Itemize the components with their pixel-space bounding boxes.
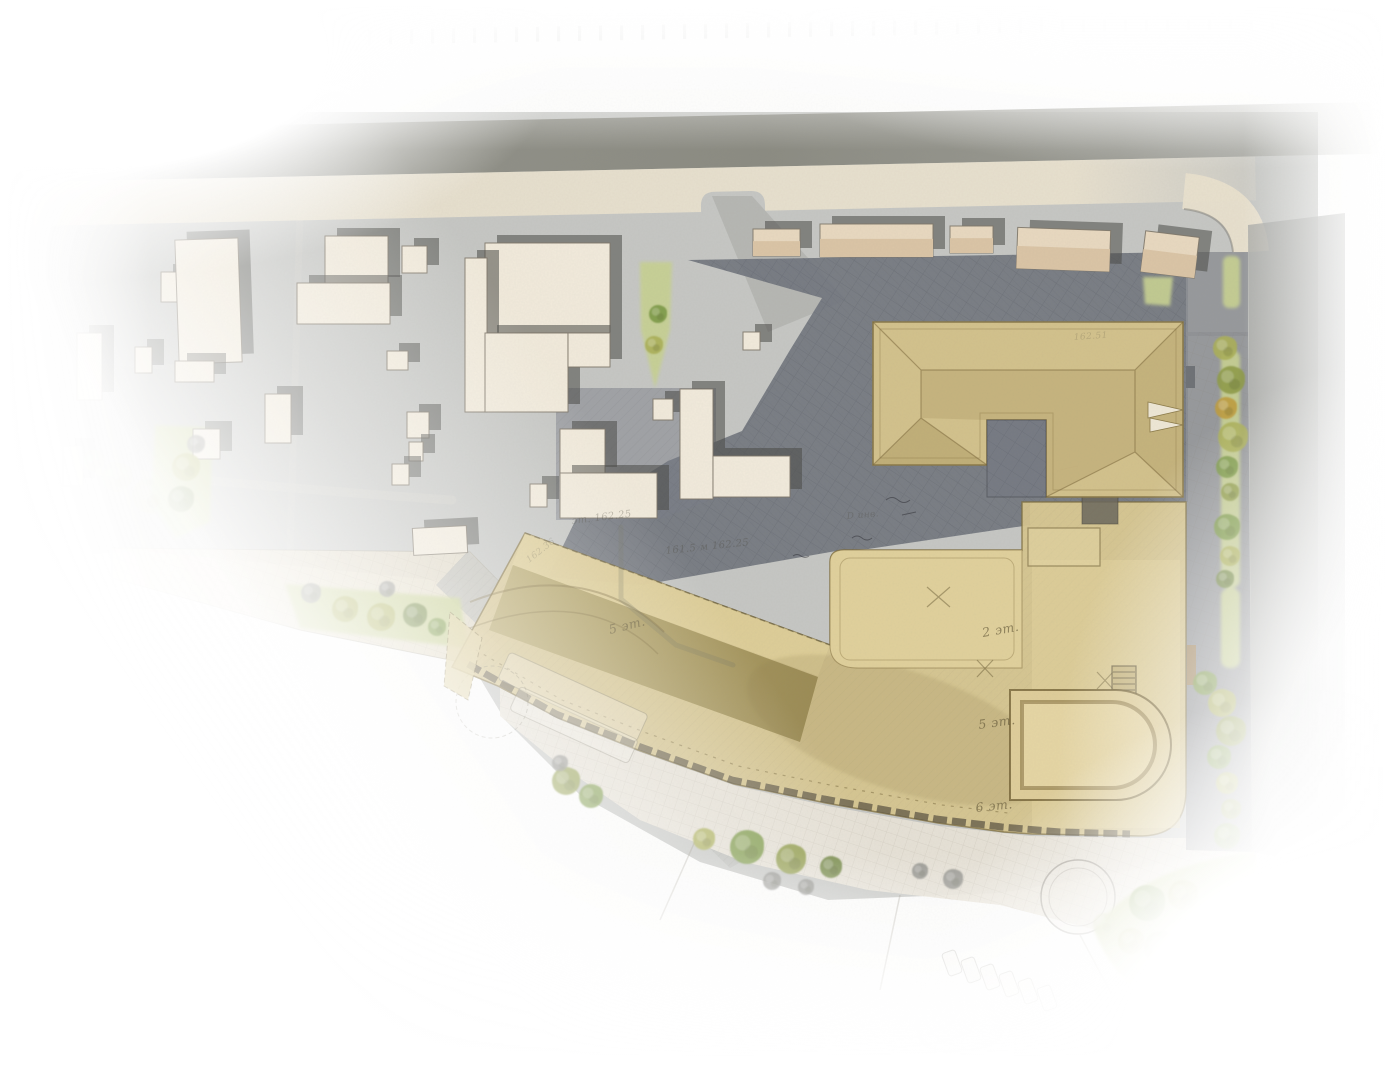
- site-plan-drawing: 5 эт.2 эт.5 эт.6 эт.эт. 162.25161.5 м 16…: [0, 0, 1393, 1083]
- paper-grain: [0, 0, 1393, 1083]
- site-plan-canvas: 5 эт.2 эт.5 эт.6 эт.эт. 162.25161.5 м 16…: [0, 0, 1393, 1083]
